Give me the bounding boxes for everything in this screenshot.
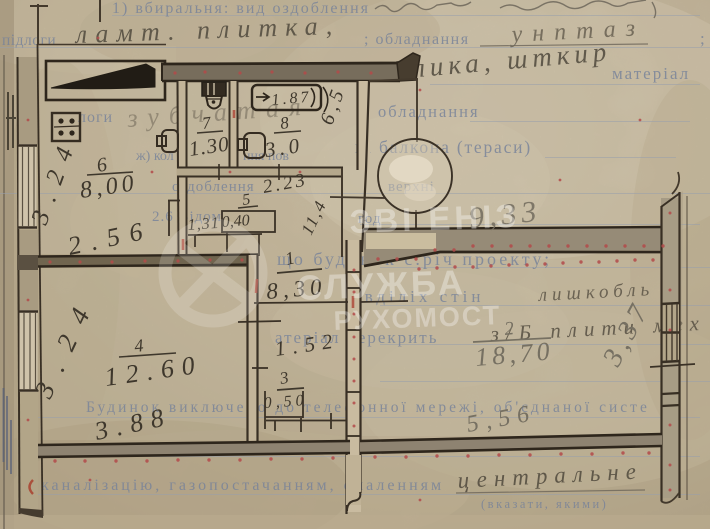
svg-text:0,50: 0,50 xyxy=(263,392,308,412)
svg-text:матеріал: матеріал xyxy=(612,64,690,83)
svg-text:; обладнання: ; обладнання xyxy=(364,31,470,48)
svg-text:РУХОМОСТ: РУХОМОСТ xyxy=(333,300,502,336)
svg-text:ЗВІ ЕНІЗ: ЗВІ ЕНІЗ xyxy=(349,197,521,240)
svg-text:1.87: 1.87 xyxy=(271,89,312,109)
svg-text:;: ; xyxy=(700,29,705,48)
svg-text:підлоги: підлоги xyxy=(2,32,56,49)
svg-text:СЛУЖБА: СЛУЖБА xyxy=(296,263,467,308)
svg-text:обладнання: обладнання xyxy=(378,102,480,121)
svg-text:каналізацію, газопостачанням,: каналізацію, газопостачанням, опаленням xyxy=(41,477,444,494)
svg-text:логи: логи xyxy=(78,109,113,126)
svg-text:(вказати, якими): (вказати, якими) xyxy=(481,497,608,511)
